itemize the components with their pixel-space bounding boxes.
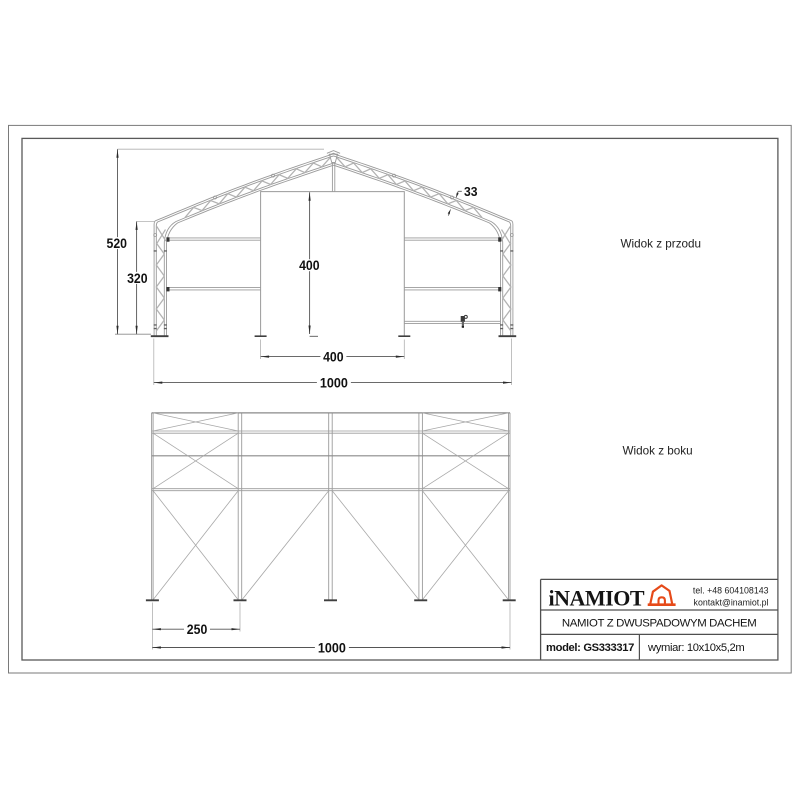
svg-text:320: 320 [127, 270, 148, 286]
svg-text:Widok z boku: Widok z boku [623, 445, 693, 458]
svg-text:400: 400 [323, 349, 344, 365]
svg-text:250: 250 [187, 621, 208, 637]
svg-text:1000: 1000 [320, 375, 348, 391]
svg-text:model: GS333317: model: GS333317 [546, 642, 634, 654]
svg-text:520: 520 [107, 235, 128, 251]
svg-text:33: 33 [464, 184, 478, 199]
svg-text:tel. +48 604108143: tel. +48 604108143 [693, 586, 769, 596]
svg-text:wymiar: 10x10x5,2m: wymiar: 10x10x5,2m [647, 642, 744, 654]
svg-text:kontakt@inamiot.pl: kontakt@inamiot.pl [694, 598, 769, 608]
svg-text:1000: 1000 [318, 639, 346, 655]
svg-text:Widok z przodu: Widok z przodu [621, 238, 702, 251]
svg-text:400: 400 [299, 257, 320, 273]
svg-text:NAMIOT Z DWUSPADOWYM DACHEM: NAMIOT Z DWUSPADOWYM DACHEM [562, 618, 757, 630]
svg-text:iNAMIOT: iNAMIOT [549, 586, 645, 611]
